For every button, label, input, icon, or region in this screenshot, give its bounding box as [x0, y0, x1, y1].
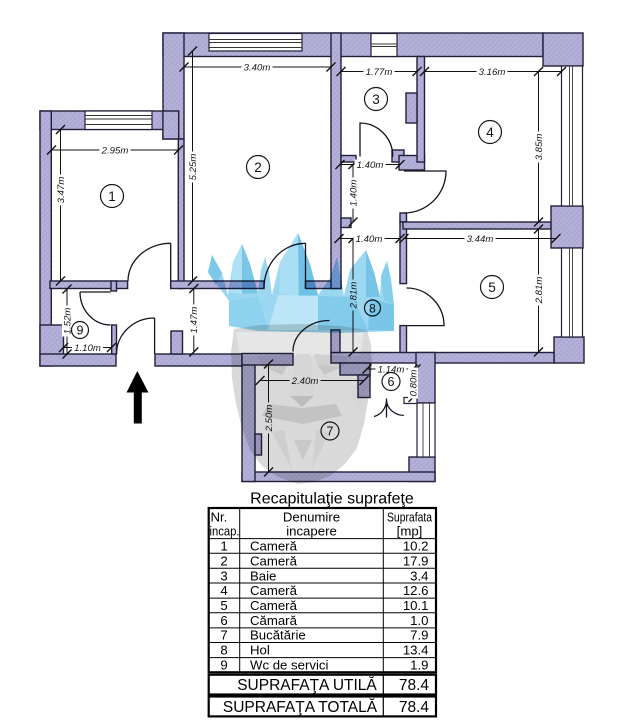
svg-text:9: 9 [220, 658, 227, 673]
svg-text:3: 3 [220, 568, 227, 583]
svg-text:8: 8 [220, 643, 227, 658]
svg-text:2.81m: 2.81m [534, 277, 545, 305]
svg-text:10.1: 10.1 [403, 598, 429, 613]
svg-text:4: 4 [486, 125, 494, 140]
svg-text:3.4: 3.4 [410, 568, 428, 583]
svg-text:Wc de servici: Wc de servici [250, 658, 328, 673]
svg-text:7: 7 [220, 628, 227, 643]
svg-text:Recapitulaţie suprafeţe: Recapitulaţie suprafeţe [250, 491, 414, 508]
svg-text:Cameră: Cameră [250, 583, 298, 598]
svg-text:13.4: 13.4 [403, 643, 429, 658]
svg-text:0.80m: 0.80m [408, 370, 419, 397]
svg-text:2: 2 [254, 160, 262, 175]
svg-text:3.44m: 3.44m [467, 234, 494, 245]
svg-text:4: 4 [220, 583, 227, 598]
svg-text:Cameră: Cameră [250, 539, 298, 554]
svg-text:Hol: Hol [250, 643, 270, 658]
svg-text:2.95m: 2.95m [101, 145, 129, 156]
svg-text:1.40m: 1.40m [356, 234, 383, 245]
svg-text:1.0: 1.0 [410, 613, 428, 628]
svg-text:7.9: 7.9 [410, 628, 428, 643]
svg-text:9: 9 [77, 323, 84, 337]
svg-text:1: 1 [108, 189, 116, 204]
svg-text:6: 6 [220, 613, 227, 628]
svg-text:78.4: 78.4 [399, 677, 430, 694]
svg-text:1.40m: 1.40m [348, 180, 359, 207]
svg-text:5: 5 [220, 598, 227, 613]
svg-text:17.9: 17.9 [403, 553, 429, 568]
svg-text:78.4: 78.4 [399, 699, 430, 716]
svg-text:3.40m: 3.40m [244, 62, 271, 73]
svg-text:3.85m: 3.85m [534, 134, 545, 161]
svg-text:1.77m: 1.77m [366, 67, 393, 78]
svg-text:1.9: 1.9 [410, 658, 428, 673]
svg-text:SUPRAFAŢA UTILĂ: SUPRAFAŢA UTILĂ [237, 677, 377, 694]
svg-text:1.40m: 1.40m [357, 160, 384, 171]
svg-text:12.6: 12.6 [403, 583, 429, 598]
svg-text:Baie: Baie [250, 568, 276, 583]
svg-text:incapere: incapere [286, 524, 337, 539]
svg-text:6: 6 [388, 375, 395, 389]
svg-text:5.25m: 5.25m [188, 154, 199, 181]
svg-text:Nr.: Nr. [211, 510, 228, 525]
svg-text:1.10m: 1.10m [74, 343, 101, 354]
svg-text:SUPRAFAŢA TOTALĂ: SUPRAFAŢA TOTALĂ [223, 699, 378, 716]
svg-text:Cameră: Cameră [250, 598, 298, 613]
svg-text:Bucătărie: Bucătărie [250, 628, 306, 643]
svg-text:1: 1 [220, 539, 227, 554]
svg-text:Suprafata: Suprafata [387, 510, 433, 525]
svg-text:Denumire: Denumire [283, 510, 340, 525]
svg-text:10.2: 10.2 [403, 539, 429, 554]
svg-text:3: 3 [372, 92, 380, 107]
svg-text:Cămară: Cămară [250, 613, 298, 628]
svg-text:3.16m: 3.16m [479, 67, 506, 78]
svg-text:incap.: incap. [210, 524, 240, 539]
svg-text:Cameră: Cameră [250, 553, 298, 568]
svg-text:5: 5 [488, 280, 496, 295]
svg-text:2: 2 [220, 553, 227, 568]
svg-text:1.47m: 1.47m [189, 307, 200, 334]
svg-text:3.47m: 3.47m [56, 177, 67, 204]
svg-text:[mp]: [mp] [397, 524, 423, 539]
